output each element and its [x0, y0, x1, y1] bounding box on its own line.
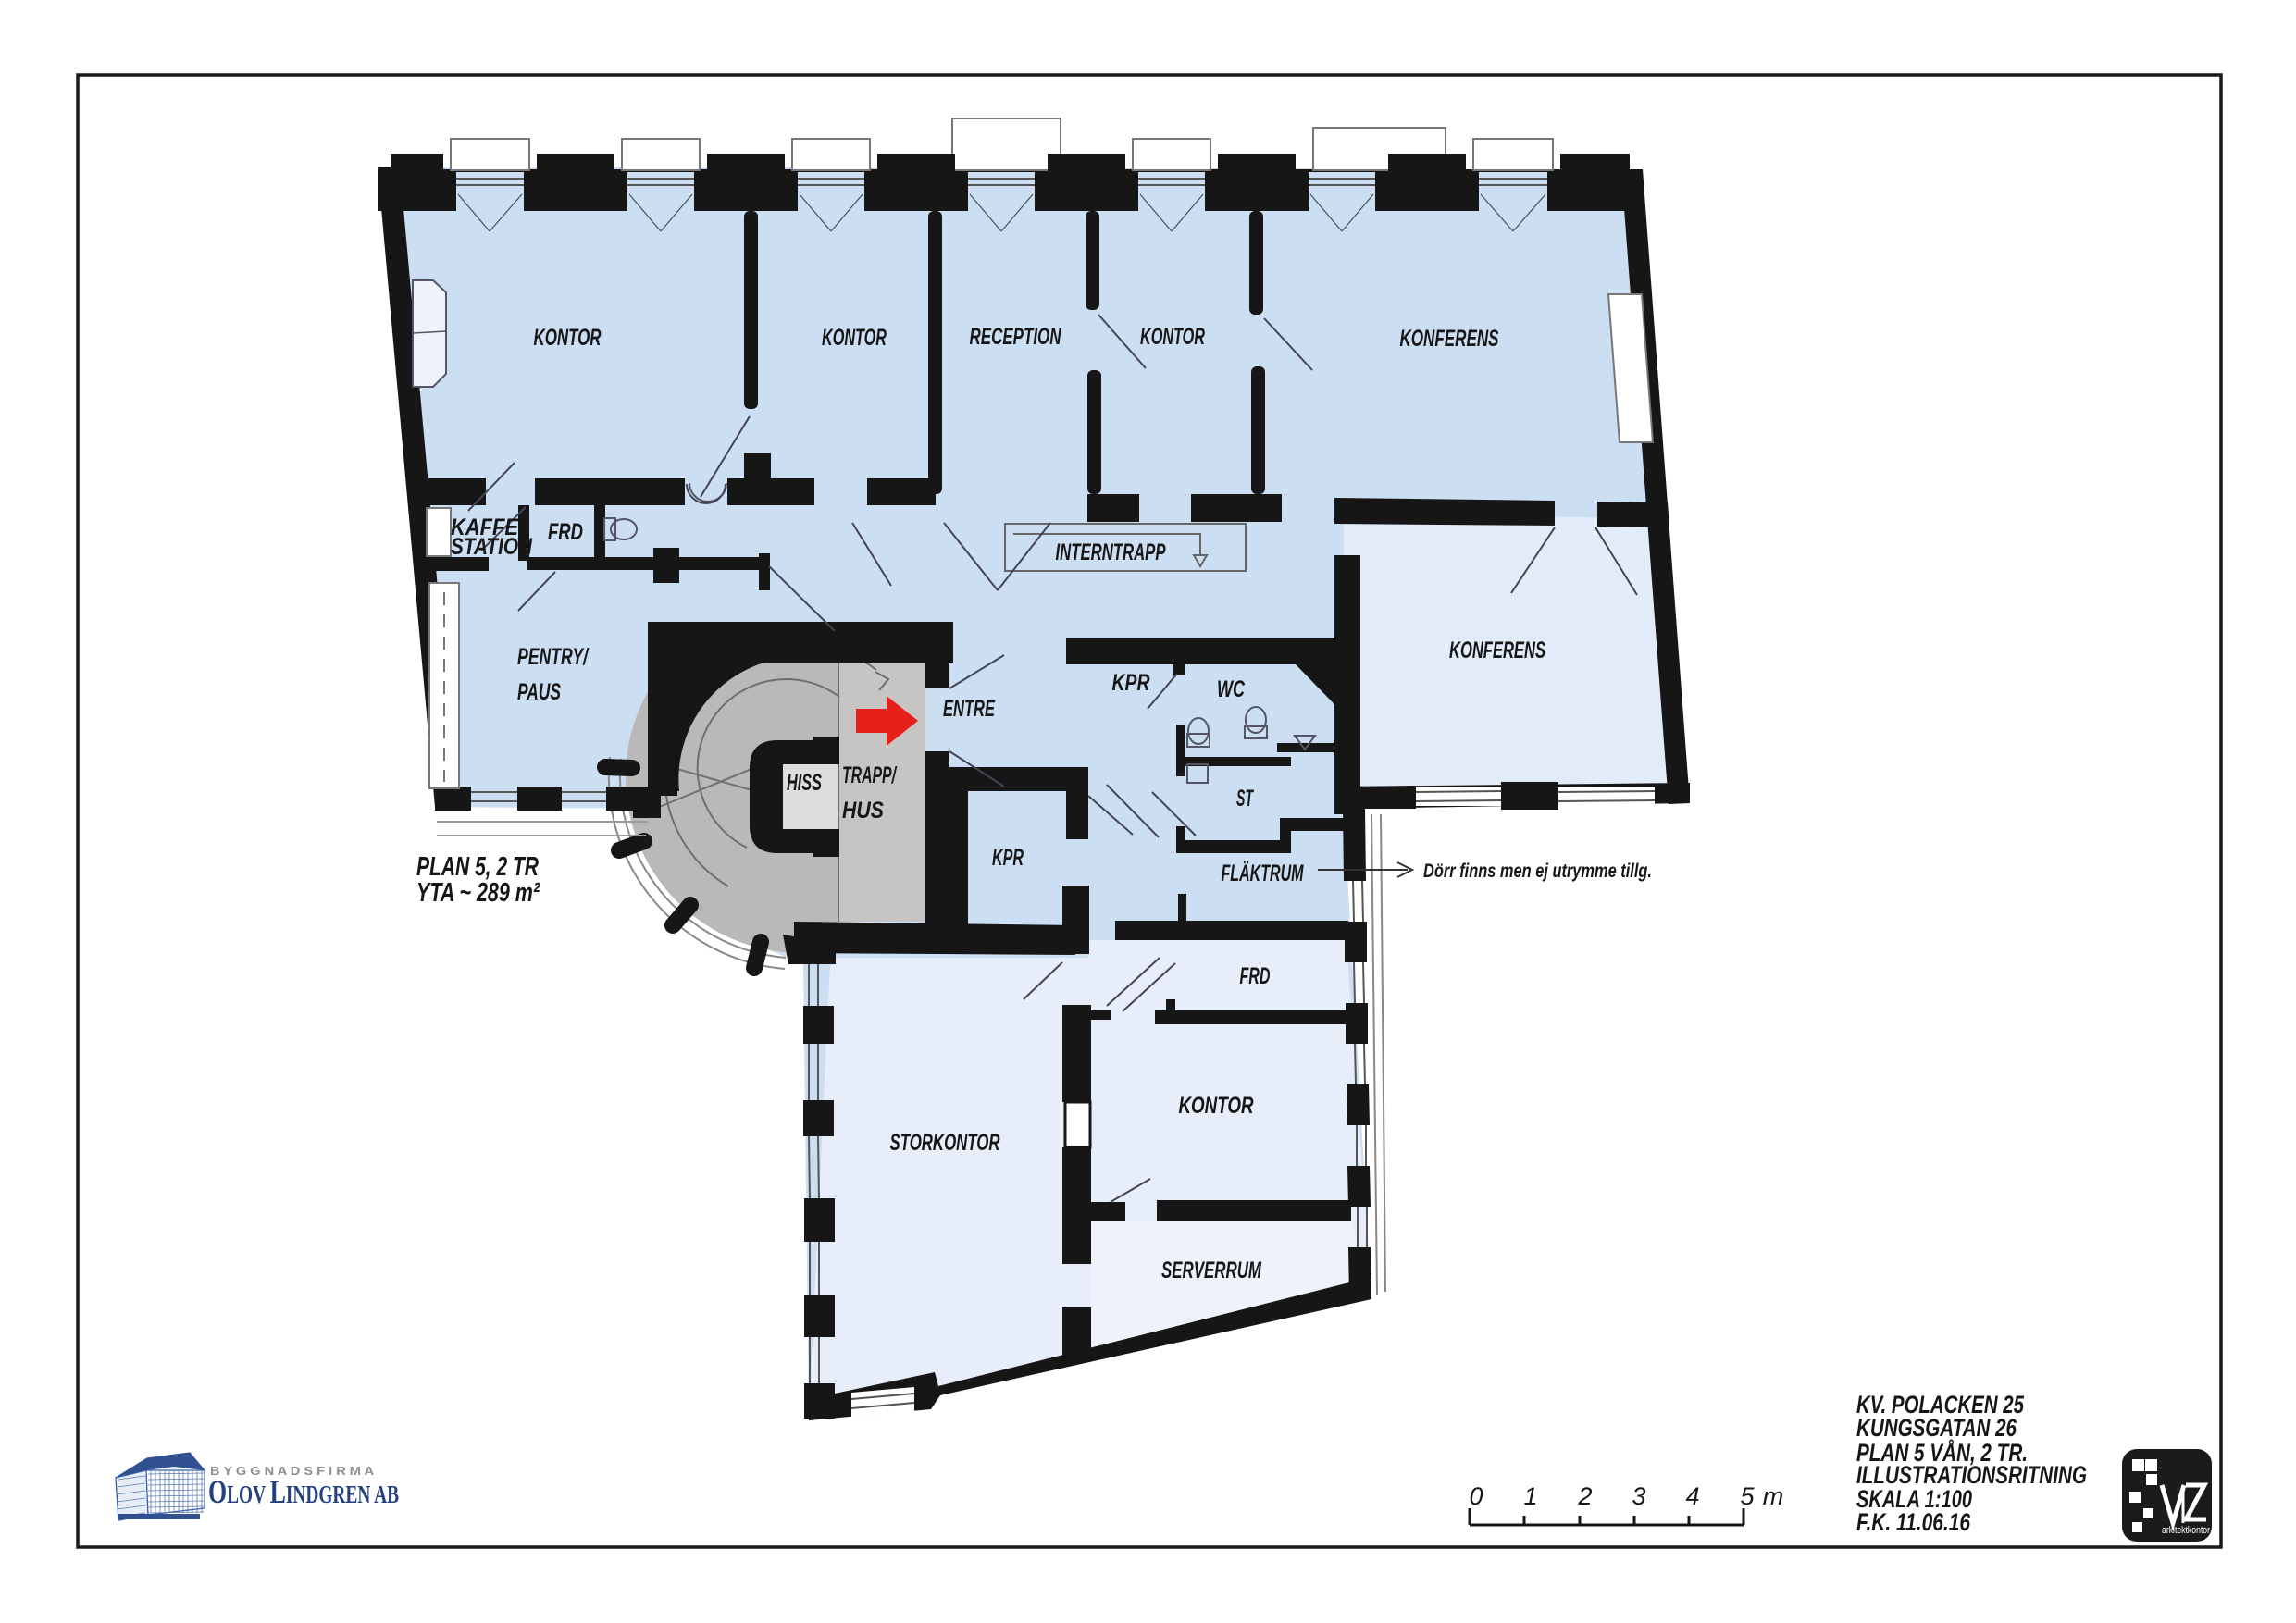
- svg-text:m: m: [1763, 1482, 1784, 1510]
- svg-text:INTERNTRAPP: INTERNTRAPP: [1056, 539, 1166, 565]
- svg-text:KPR: KPR: [1112, 670, 1150, 696]
- svg-text:ENTRE: ENTRE: [943, 696, 996, 722]
- svg-text:WC: WC: [1217, 676, 1246, 702]
- svg-text:Dörr finns men ej utrymme till: Dörr finns men ej utrymme tillg.: [1423, 861, 1652, 882]
- svg-text:KONTOR: KONTOR: [1179, 1093, 1254, 1119]
- svg-text:3: 3: [1632, 1482, 1645, 1510]
- svg-text:STORKONTOR: STORKONTOR: [890, 1130, 1000, 1156]
- svg-text:RECEPTION: RECEPTION: [970, 324, 1062, 350]
- svg-text:YTA ~ 289 m²: YTA ~ 289 m²: [416, 878, 540, 908]
- svg-text:FRD: FRD: [548, 519, 583, 545]
- svg-text:TRAPP/: TRAPP/: [842, 762, 898, 788]
- svg-text:KUNGSGATAN 26: KUNGSGATAN 26: [1856, 1414, 2017, 1442]
- svg-text:5: 5: [1740, 1482, 1755, 1510]
- svg-text:HISS: HISS: [787, 770, 822, 796]
- svg-text:PENTRY/: PENTRY/: [517, 644, 590, 670]
- svg-text:B Y G G N A D S F I R M A: B Y G G N A D S F I R M A: [210, 1464, 375, 1478]
- svg-text:FRD: FRD: [1240, 963, 1271, 989]
- svg-text:F.K. 11.06.16: F.K. 11.06.16: [1856, 1508, 1971, 1536]
- svg-text:1: 1: [1523, 1482, 1537, 1510]
- svg-text:HUS: HUS: [842, 798, 884, 824]
- svg-text:KONTOR: KONTOR: [822, 325, 887, 351]
- svg-text:PAUS: PAUS: [517, 679, 561, 705]
- svg-text:KONTOR: KONTOR: [534, 325, 602, 351]
- svg-text:0: 0: [1469, 1482, 1483, 1510]
- svg-text:ST: ST: [1236, 786, 1255, 811]
- svg-text:KONTOR: KONTOR: [1140, 324, 1205, 350]
- svg-text:KPR: KPR: [992, 845, 1024, 871]
- svg-text:SERVERRUM: SERVERRUM: [1161, 1258, 1262, 1283]
- svg-text:STATION: STATION: [451, 534, 533, 560]
- svg-text:4: 4: [1685, 1482, 1699, 1510]
- svg-text:KONFERENS: KONFERENS: [1400, 326, 1499, 352]
- svg-text:arkitektkontor: arkitektkontor: [2162, 1525, 2210, 1536]
- svg-text:KONFERENS: KONFERENS: [1449, 638, 1545, 663]
- svg-text:2: 2: [1577, 1482, 1592, 1510]
- svg-text:FLÄKTRUM: FLÄKTRUM: [1222, 861, 1305, 886]
